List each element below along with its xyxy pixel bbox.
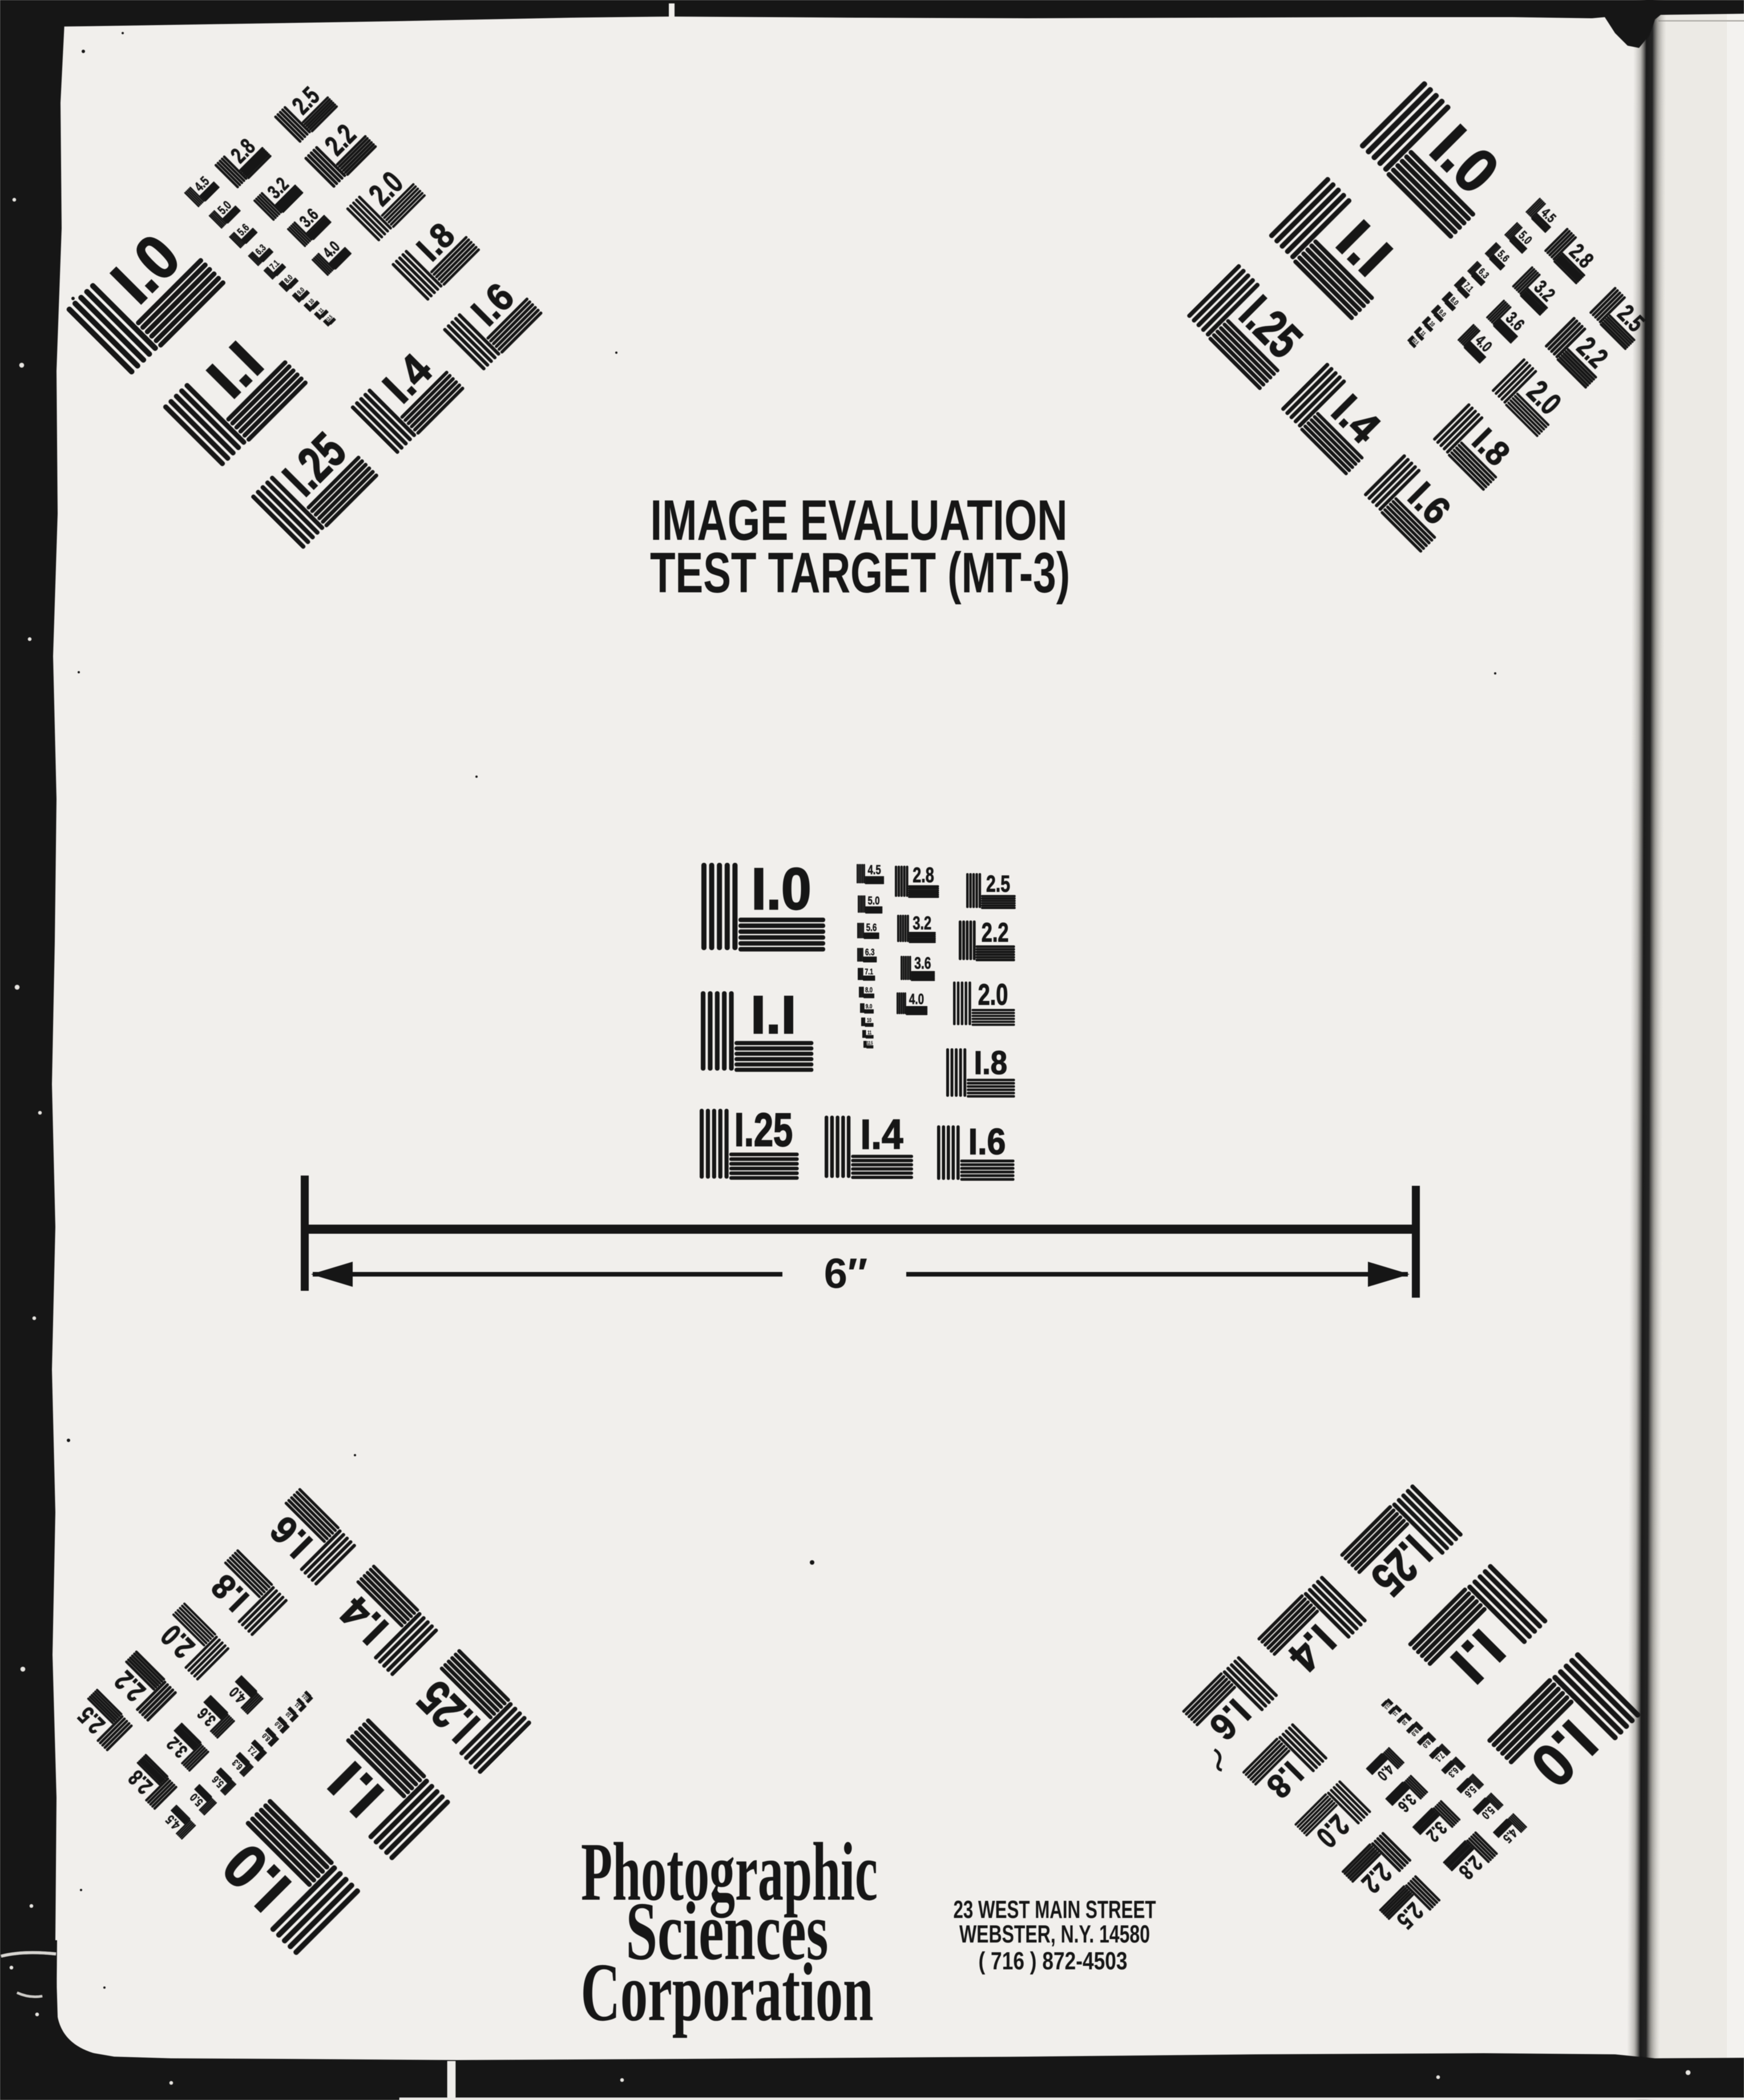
svg-text:( 716 ) 872-4503: ( 716 ) 872-4503 [979, 1947, 1128, 1975]
svg-text:TEST TARGET (MT-3): TEST TARGET (MT-3) [650, 541, 1070, 605]
svg-text:6″: 6″ [824, 1250, 868, 1297]
svg-text:Corporation: Corporation [581, 1946, 874, 2038]
svg-text:WEBSTER, N.Y. 14580: WEBSTER, N.Y. 14580 [959, 1920, 1150, 1948]
svg-text:23 WEST MAIN STREET: 23 WEST MAIN STREET [954, 1896, 1156, 1924]
